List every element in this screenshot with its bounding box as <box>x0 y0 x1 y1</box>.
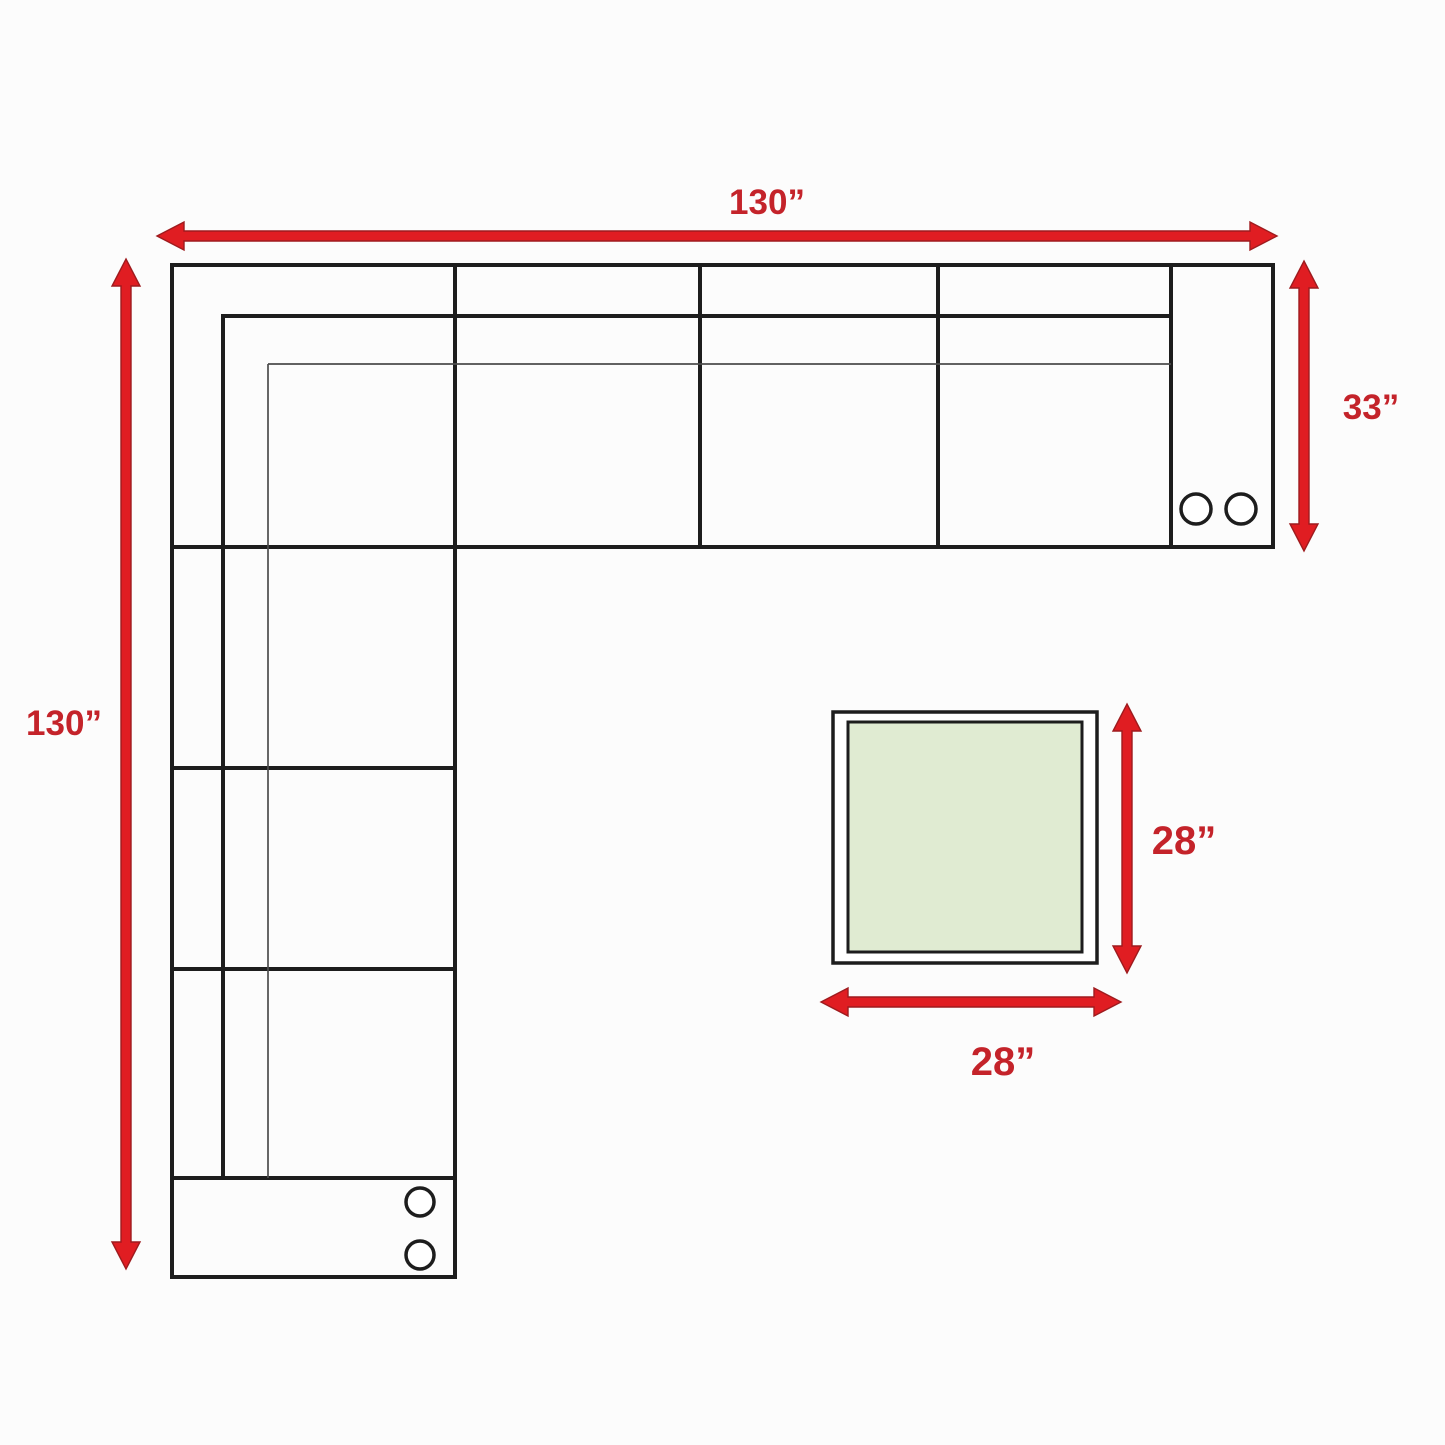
sectional-sofa-outline <box>172 265 1273 1277</box>
table-depth-arrow <box>1113 704 1141 973</box>
dimension-diagram-canvas: 130” 130” 33” 28” 28” <box>0 0 1445 1445</box>
right-armrest-cupholder-1 <box>1181 494 1211 524</box>
right-armrest-cupholder-2 <box>1226 494 1256 524</box>
table-depth-label: 28” <box>1152 819 1217 863</box>
coffee-table <box>833 712 1097 963</box>
table-width-arrow <box>821 988 1121 1016</box>
dimension-labels: 130” 130” 33” 28” 28” <box>26 183 1399 1084</box>
sectional-sofa-dimension-diagram: 130” 130” 33” 28” 28” <box>0 0 1445 1445</box>
sofa-depth-label: 33” <box>1343 388 1399 427</box>
sofa-width-arrow <box>157 222 1277 250</box>
bottom-armrest-cupholder-2 <box>406 1241 434 1269</box>
sofa-length-arrow <box>112 259 140 1269</box>
sofa-length-label: 130” <box>26 704 102 743</box>
table-width-label: 28” <box>971 1040 1036 1084</box>
sofa-depth-arrow <box>1290 261 1318 551</box>
sofa-width-label: 130” <box>729 183 805 222</box>
table-top-surface <box>848 722 1082 952</box>
bottom-armrest-cupholder-1 <box>406 1188 434 1216</box>
dimension-arrows <box>112 222 1318 1269</box>
